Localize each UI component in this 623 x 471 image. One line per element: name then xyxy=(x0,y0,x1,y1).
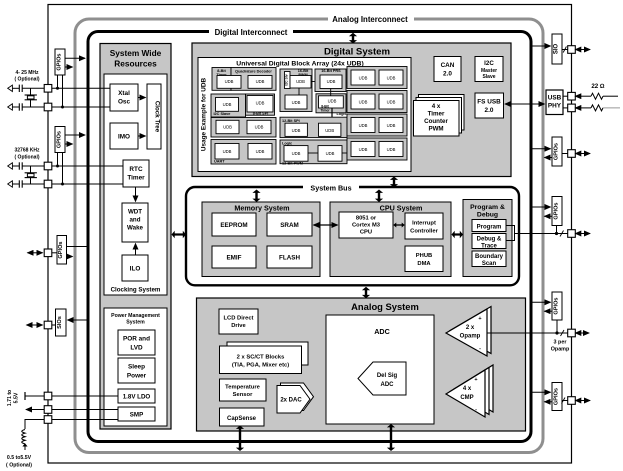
svg-text:LVD: LVD xyxy=(130,345,143,352)
svg-text:GPIOs: GPIOs xyxy=(553,297,559,314)
svg-text:Osc: Osc xyxy=(118,99,131,106)
svg-text:LCD Direct: LCD Direct xyxy=(224,316,254,322)
svg-text:16-Bit PRS: 16-Bit PRS xyxy=(321,69,341,73)
svg-text:UDB: UDB xyxy=(359,147,368,152)
svg-text:Memory System: Memory System xyxy=(234,204,289,213)
svg-text:Scan: Scan xyxy=(482,261,497,267)
svg-text:0.5 to5.5V: 0.5 to5.5V xyxy=(7,455,32,461)
svg-text:CPU System: CPU System xyxy=(380,204,423,213)
svg-text:SRAM: SRAM xyxy=(280,222,299,229)
svg-text:I2C: I2C xyxy=(484,60,494,67)
svg-text:2x DAC: 2x DAC xyxy=(280,398,302,404)
svg-text:SMP: SMP xyxy=(130,412,143,419)
svg-text:UDB: UDB xyxy=(255,125,264,130)
svg-text:2.0: 2.0 xyxy=(485,107,494,114)
svg-text:Trace: Trace xyxy=(481,243,497,249)
svg-text:UDB: UDB xyxy=(292,151,301,156)
svg-text:2 x: 2 x xyxy=(466,325,475,331)
svg-text:Resources: Resources xyxy=(114,59,157,69)
svg-text:UDB: UDB xyxy=(225,79,234,84)
svg-text:2.0: 2.0 xyxy=(443,71,452,78)
svg-text:4- 25 MHz: 4- 25 MHz xyxy=(15,70,39,76)
svg-text:Slave: Slave xyxy=(482,74,495,80)
svg-text:UDB: UDB xyxy=(296,79,305,84)
svg-text:-: - xyxy=(479,346,481,352)
svg-text:4 x: 4 x xyxy=(432,103,441,110)
svg-text:GPIOs: GPIOs xyxy=(553,388,559,405)
svg-text:UDB: UDB xyxy=(387,147,396,152)
svg-text:UDB: UDB xyxy=(256,149,265,154)
svg-text:Digital System: Digital System xyxy=(324,47,390,58)
svg-text:GPIOs: GPIOs xyxy=(56,53,62,70)
svg-text:1.71 to: 1.71 to xyxy=(7,390,13,406)
svg-text:Universal Digital Block Array: Universal Digital Block Array (24x UDB) xyxy=(236,60,363,67)
svg-text:GPIOs: GPIOs xyxy=(56,131,62,148)
svg-text:Opamp: Opamp xyxy=(460,334,481,340)
svg-text:Clocking System: Clocking System xyxy=(111,287,161,294)
svg-text:Drive: Drive xyxy=(231,323,246,329)
svg-text:UDB: UDB xyxy=(325,128,334,133)
svg-text:UDB: UDB xyxy=(387,76,396,81)
svg-text:Timer: Timer xyxy=(127,175,145,182)
svg-text:Master: Master xyxy=(481,68,497,74)
svg-text:and: and xyxy=(129,217,140,224)
svg-text:UDB: UDB xyxy=(223,149,232,154)
svg-text:UDB: UDB xyxy=(326,151,335,156)
svg-text:( Optional): ( Optional) xyxy=(15,155,40,161)
svg-text:Counter: Counter xyxy=(424,118,448,125)
svg-text:System Bus: System Bus xyxy=(310,184,351,193)
svg-text:DMA: DMA xyxy=(417,261,431,267)
svg-text:ADC: ADC xyxy=(381,382,395,388)
svg-text:GPIOs: GPIOs xyxy=(553,143,559,160)
svg-text:Interrupt: Interrupt xyxy=(412,221,436,227)
svg-text:Analog Interconnect: Analog Interconnect xyxy=(332,15,408,24)
svg-text:EMIF: EMIF xyxy=(226,255,241,262)
svg-text:Clock Tree: Clock Tree xyxy=(154,101,161,133)
svg-text:ADC: ADC xyxy=(374,327,390,336)
svg-text:CapSense: CapSense xyxy=(227,416,257,422)
svg-text:( Optional): ( Optional) xyxy=(6,463,32,469)
svg-text:UART: UART xyxy=(214,160,225,164)
svg-text:22 Ω: 22 Ω xyxy=(591,83,605,90)
svg-text:System Wide: System Wide xyxy=(110,48,162,58)
svg-text:UDB: UDB xyxy=(292,128,301,133)
svg-text:Sensor: Sensor xyxy=(233,392,253,398)
svg-text:Debug: Debug xyxy=(477,212,498,219)
svg-text:UDB: UDB xyxy=(223,102,232,107)
svg-text:12-Bit PWM: 12-Bit PWM xyxy=(282,161,303,165)
svg-text:PHY: PHY xyxy=(548,103,562,110)
svg-text:UDB: UDB xyxy=(387,123,396,128)
svg-text:8051 or: 8051 or xyxy=(356,216,377,222)
svg-text:Power: Power xyxy=(127,373,147,380)
svg-text:-: - xyxy=(475,407,477,413)
svg-text:UDB: UDB xyxy=(256,101,265,106)
svg-text:Controller: Controller xyxy=(410,229,438,235)
svg-text:Program: Program xyxy=(477,224,502,230)
svg-text:PHUB: PHUB xyxy=(416,253,432,259)
svg-text:Boundary: Boundary xyxy=(475,254,504,260)
svg-text:SIO: SIO xyxy=(553,44,559,55)
svg-text:UDB: UDB xyxy=(328,99,337,104)
svg-text:1.8V LDO: 1.8V LDO xyxy=(123,394,151,401)
svg-text:32768 KHz: 32768 KHz xyxy=(14,148,40,154)
svg-text:2 x SC/CT Blocks: 2 x SC/CT Blocks xyxy=(237,355,285,361)
svg-text:Sleep: Sleep xyxy=(128,364,145,371)
svg-text:FLASH: FLASH xyxy=(279,255,300,262)
svg-text:+: + xyxy=(474,377,477,383)
svg-text:4 x: 4 x xyxy=(463,386,472,392)
svg-text:Timer: Timer xyxy=(428,111,445,118)
svg-text:8-Bit SPI: 8-Bit SPI xyxy=(253,111,269,115)
svg-text:Quadrature Decoder: Quadrature Decoder xyxy=(235,70,272,74)
svg-text:Program &: Program & xyxy=(470,204,505,211)
svg-text:12-Bit SPI: 12-Bit SPI xyxy=(282,119,300,123)
svg-text:ILO: ILO xyxy=(130,266,141,273)
svg-text:Cortex M3: Cortex M3 xyxy=(352,223,381,229)
svg-text:Xtal: Xtal xyxy=(118,90,130,97)
svg-text:Opamp: Opamp xyxy=(551,347,570,353)
svg-text:CMP: CMP xyxy=(460,395,473,401)
svg-text:SIOs: SIOs xyxy=(57,316,63,329)
svg-text:PWM: PWM xyxy=(428,126,443,133)
svg-text:UDB: UDB xyxy=(387,100,396,105)
svg-text:3 per: 3 per xyxy=(554,340,568,346)
svg-text:EEPROM: EEPROM xyxy=(220,222,247,229)
svg-text:Power Management: Power Management xyxy=(111,313,160,319)
svg-text:CPU: CPU xyxy=(360,230,372,236)
svg-text:Logic: Logic xyxy=(336,112,346,116)
svg-text:(TIA, PGA, Mixer etc): (TIA, PGA, Mixer etc) xyxy=(232,363,289,369)
svg-text:USB: USB xyxy=(548,95,562,102)
svg-text:RTC: RTC xyxy=(129,166,143,173)
svg-text:GPIOs: GPIOs xyxy=(58,241,64,258)
svg-text:Timer: Timer xyxy=(320,109,330,113)
svg-text:Usage Example for UDB: Usage Example for UDB xyxy=(201,78,208,152)
svg-text:POR and: POR and xyxy=(123,336,150,343)
svg-text:UDB: UDB xyxy=(223,125,232,130)
svg-text:UDB: UDB xyxy=(359,123,368,128)
svg-text:Temperature: Temperature xyxy=(225,385,260,391)
svg-text:Logic: Logic xyxy=(282,141,292,145)
svg-text:WDT: WDT xyxy=(128,209,142,216)
svg-text:UDB: UDB xyxy=(359,76,368,81)
svg-text:Analog System: Analog System xyxy=(351,301,419,312)
svg-text:+: + xyxy=(478,316,481,322)
svg-text:I2C Slave: I2C Slave xyxy=(214,112,231,116)
svg-text:UDB: UDB xyxy=(292,100,301,105)
svg-text:UDB: UDB xyxy=(256,79,265,84)
svg-text:5.5V: 5.5V xyxy=(14,392,20,403)
svg-text:Digital Interconnect: Digital Interconnect xyxy=(215,28,288,37)
svg-text:( Optional): ( Optional) xyxy=(15,77,40,83)
svg-text:Wake: Wake xyxy=(127,225,143,232)
svg-text:Debug &: Debug & xyxy=(477,236,502,242)
svg-text:Del Sig: Del Sig xyxy=(377,373,398,379)
svg-text:I2C Slv: I2C Slv xyxy=(285,74,289,85)
svg-text:CAN: CAN xyxy=(441,62,455,69)
svg-text:IMO: IMO xyxy=(118,134,130,141)
svg-text:FS USB: FS USB xyxy=(477,99,501,106)
svg-text:UDB: UDB xyxy=(359,100,368,105)
svg-text:GPIOs: GPIOs xyxy=(553,202,559,219)
svg-text:System: System xyxy=(126,320,145,326)
svg-text:UDB: UDB xyxy=(327,79,336,84)
